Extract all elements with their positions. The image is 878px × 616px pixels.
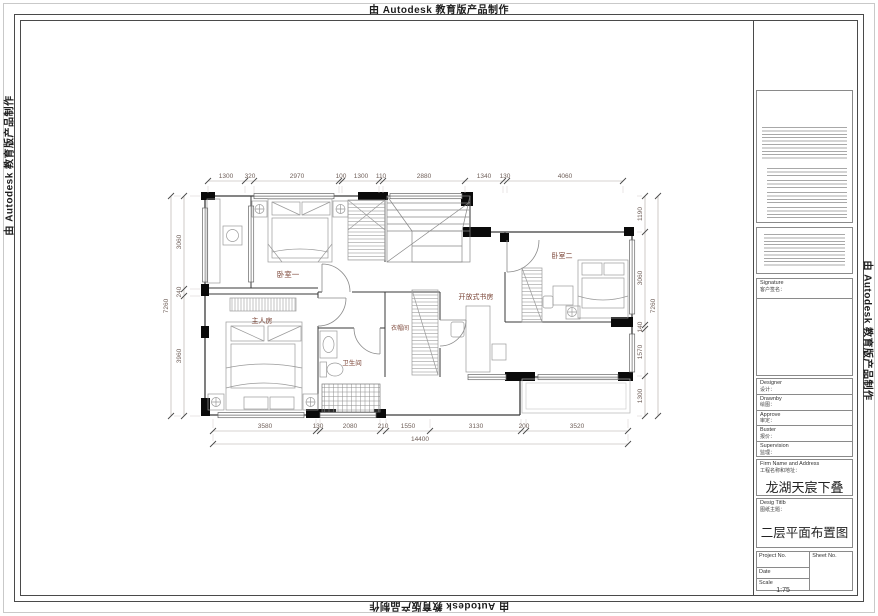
dim-bottom-3: 210 (378, 423, 389, 430)
sheet-no-cell: Sheet No. (810, 552, 852, 590)
dim-top-5: 110 (376, 173, 387, 180)
dim-top-6: 2880 (417, 173, 432, 180)
door-bedroom1 (322, 264, 350, 292)
approval-fields: Designer 设计： Drawnby 绘图： Approve 审定： Bus… (756, 378, 853, 457)
dim-top-3: 100 (336, 173, 347, 180)
label-master: 主人房 (252, 316, 273, 325)
dim-top-4: 1300 (354, 173, 369, 180)
signature-label-zh: 客户签名： (760, 287, 849, 293)
floor-plan-canvas: 1300 320 2970 100 1300 110 2880 1340 130… (0, 0, 878, 616)
label-bedroom2: 卧室二 (552, 251, 573, 260)
door-bedroom2 (507, 240, 539, 272)
dim-left-0: 3060 (176, 234, 183, 249)
dim-bottom-5: 3130 (469, 423, 484, 430)
dim-top-8: 130 (500, 173, 511, 180)
desig-label-zh: 图纸主题： (760, 507, 849, 513)
notes-box-english (756, 90, 853, 223)
note-item (767, 168, 847, 177)
note-item (767, 207, 847, 219)
project-name: 龙湖天宸下叠 (760, 477, 849, 496)
signature-box: Signature 客户签名： (756, 278, 853, 299)
dim-bottom-4: 1550 (401, 423, 416, 430)
field-label-zh: 绘图： (760, 402, 849, 408)
notes-paragraph (762, 127, 847, 161)
dim-right-1: 3060 (637, 270, 644, 285)
bed-2 (543, 260, 628, 319)
dim-right-4: 1300 (637, 388, 644, 403)
firm-label-zh: 工程名称和地址： (760, 468, 849, 474)
scale-label: Scale (759, 580, 773, 586)
field-drawnby: Drawnby 绘图： (757, 395, 852, 411)
bathroom-fixtures (320, 331, 380, 412)
dim-top-1: 320 (245, 173, 256, 180)
field-approve: Approve 审定： (757, 411, 852, 427)
field-label-zh: 监理： (760, 450, 849, 456)
dim-right-total: 7260 (650, 298, 657, 313)
notes-box-chinese (756, 227, 853, 274)
laundry-counter (207, 199, 242, 283)
field-label-zh: 设计： (760, 387, 849, 393)
title-block: Signature 客户签名： Designer 设计： Drawnby 绘图：… (755, 90, 854, 591)
note-item (767, 180, 847, 189)
dim-left-1: 240 (176, 286, 183, 297)
drawing-title: 二层平面布置图 (760, 522, 849, 541)
dim-bottom-7: 3520 (570, 423, 585, 430)
bed-master (208, 322, 318, 410)
study-desk (451, 306, 506, 372)
dim-right-3: 1570 (637, 344, 644, 359)
dim-bottom-total: 14400 (411, 436, 429, 443)
notes-paragraph (764, 234, 845, 268)
stairs (387, 196, 470, 262)
door-bathroom (354, 328, 380, 354)
drawing-title-box: Desig Titlb 图纸主题： 二层平面布置图 (756, 498, 853, 548)
dim-top-0: 1300 (219, 173, 234, 180)
dim-right-2: 140 (637, 321, 644, 332)
label-study: 开放式书房 (459, 292, 494, 301)
field-supervision: Supervision 监理： (757, 442, 852, 458)
dim-bottom-1: 130 (313, 423, 324, 430)
dim-right-0: 1190 (637, 207, 644, 221)
label-bedroom1: 卧室一 (277, 269, 300, 279)
scale-value: 1:75 (759, 587, 807, 594)
date-cell: Date (757, 568, 810, 579)
terrace (522, 379, 630, 413)
dim-left-2: 3960 (176, 348, 183, 363)
signature-area (756, 298, 853, 376)
door-cloakroom (440, 320, 466, 346)
label-bathroom: 卫生间 (342, 358, 362, 367)
firm-name-box: Firm Name and Address 工程名称和地址： 龙湖天宸下叠 (756, 459, 853, 496)
door-master (318, 298, 346, 326)
dim-top-9: 4060 (558, 173, 573, 180)
sheet-info-table: Project No. Sheet No. Date Scale 1:75 (756, 551, 853, 591)
dim-bottom-0: 3580 (258, 423, 273, 430)
field-label-zh: 审定： (760, 418, 849, 424)
dim-top-7: 1340 (477, 173, 492, 180)
field-buster: Buster 报价： (757, 426, 852, 442)
label-cloakroom: 衣帽间 (391, 324, 409, 332)
field-designer: Designer 设计： (757, 379, 852, 395)
dim-top-2: 2970 (290, 173, 305, 180)
project-no-cell: Project No. (757, 552, 810, 568)
dim-bottom-6: 200 (519, 423, 530, 430)
dim-left-total: 7260 (163, 298, 170, 313)
dim-bottom-2: 2080 (343, 423, 358, 430)
bed-1 (252, 199, 348, 262)
field-label-zh: 报价： (760, 434, 849, 440)
scale-cell: Scale 1:75 (757, 579, 810, 590)
note-item (767, 192, 847, 204)
